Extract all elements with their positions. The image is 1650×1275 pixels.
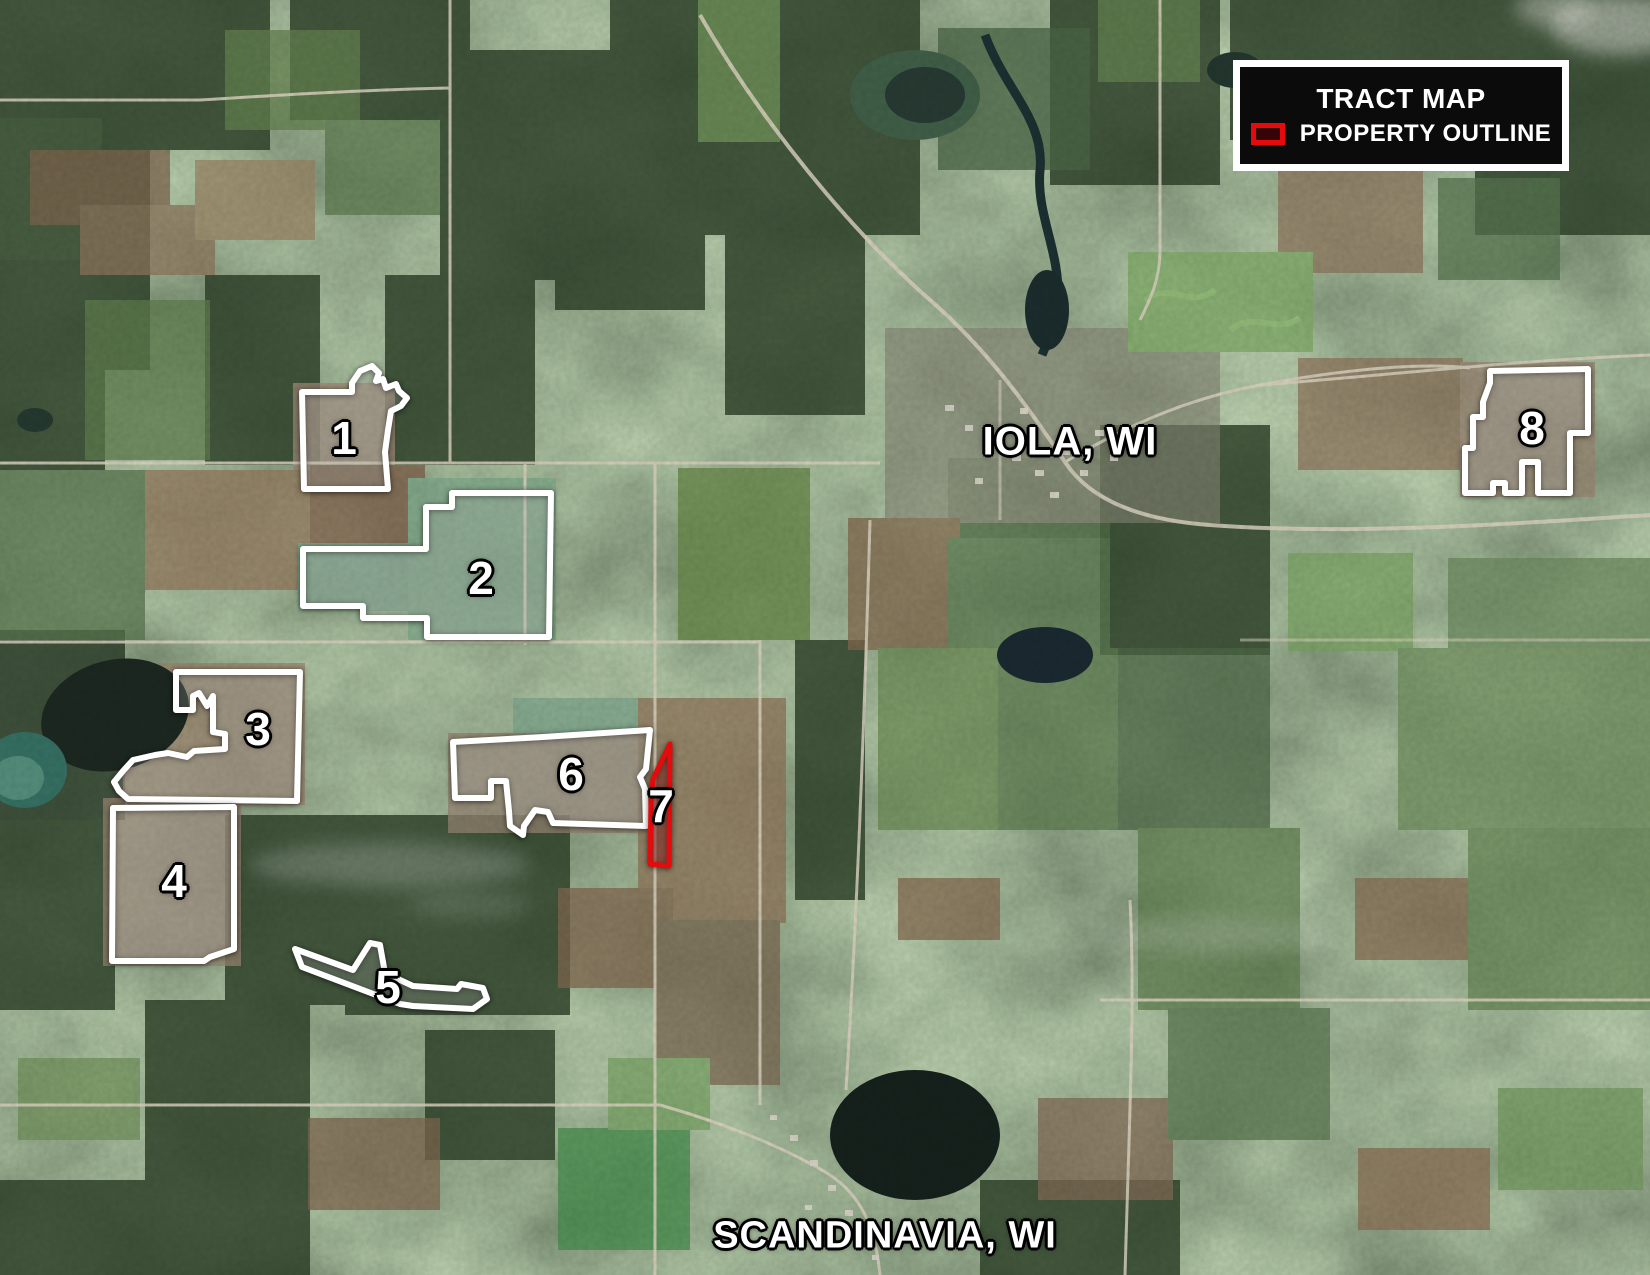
tract-7-outline (650, 744, 670, 866)
tract-3-outline (114, 672, 300, 801)
legend-row: PROPERTY OUTLINE (1251, 122, 1552, 146)
tract-5-outline (295, 943, 487, 1009)
legend: TRACT MAP PROPERTY OUTLINE (1233, 60, 1569, 171)
tract-outlines-layer (0, 0, 1650, 1275)
tract-1-outline (302, 366, 407, 489)
tract-8-outline (1465, 369, 1588, 493)
tract-6-outline (453, 730, 650, 835)
property-outline-swatch-icon (1251, 123, 1285, 145)
legend-title: TRACT MAP (1316, 85, 1485, 113)
tract-4-outline (112, 807, 234, 961)
tract-2-outline (303, 493, 551, 637)
tract-map: 12345678IOLA, WISCANDINAVIA, WI TRACT MA… (0, 0, 1650, 1275)
legend-property-outline-label: PROPERTY OUTLINE (1300, 122, 1552, 146)
